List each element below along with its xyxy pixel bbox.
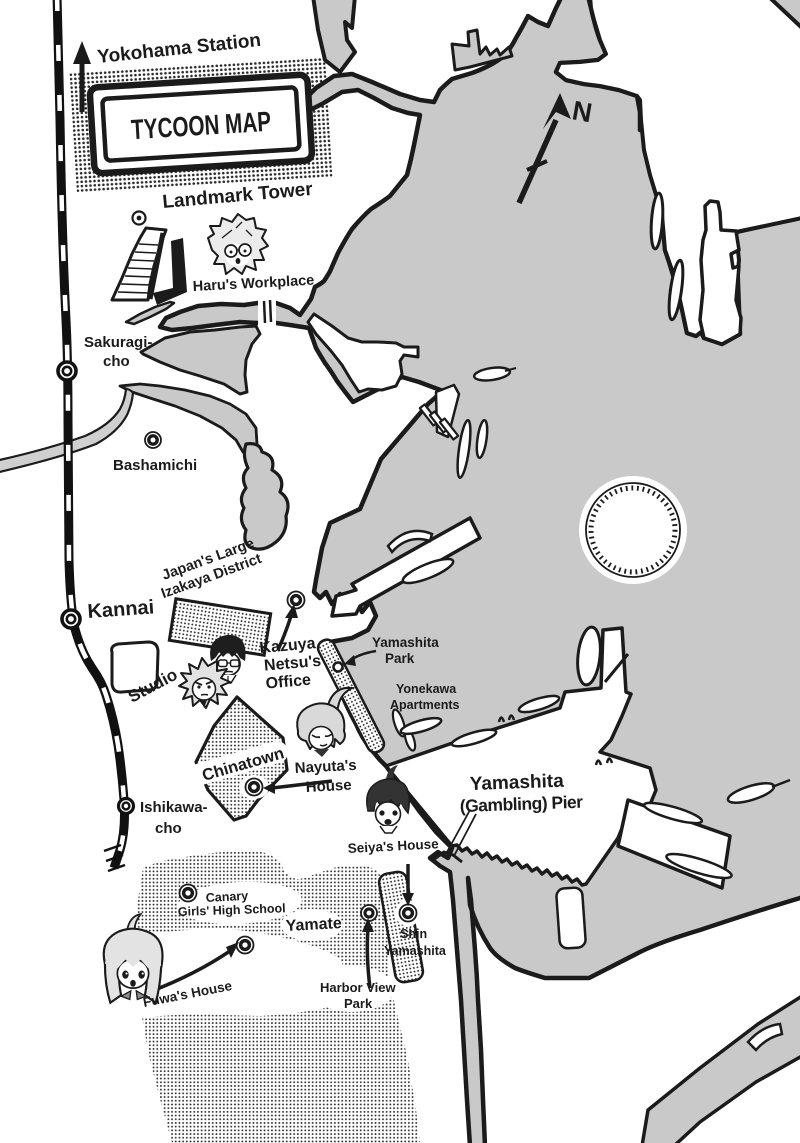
svg-text:House: House [305, 777, 352, 796]
svg-text:Yamashita: Yamashita [384, 944, 447, 958]
svg-text:Harbor View: Harbor View [320, 980, 397, 995]
svg-text:Yonekawa: Yonekawa [396, 682, 457, 696]
svg-text:Park: Park [385, 651, 415, 666]
svg-text:cho: cho [103, 353, 130, 370]
svg-text:Apartments: Apartments [390, 698, 460, 712]
svg-text:cho: cho [155, 820, 182, 837]
svg-text:Park: Park [344, 996, 373, 1011]
svg-text:Shin: Shin [400, 927, 427, 941]
svg-text:Nayuta's: Nayuta's [294, 757, 357, 777]
svg-text:Yamashita: Yamashita [372, 635, 439, 650]
svg-text:Kannai: Kannai [87, 596, 155, 623]
svg-text:Bashamichi: Bashamichi [113, 457, 197, 474]
svg-text:Ishikawa-: Ishikawa- [140, 799, 208, 816]
svg-text:Sakuragi-: Sakuragi- [84, 334, 152, 351]
svg-text:Yamate: Yamate [285, 915, 342, 935]
svg-text:Yamashita: Yamashita [469, 771, 564, 795]
